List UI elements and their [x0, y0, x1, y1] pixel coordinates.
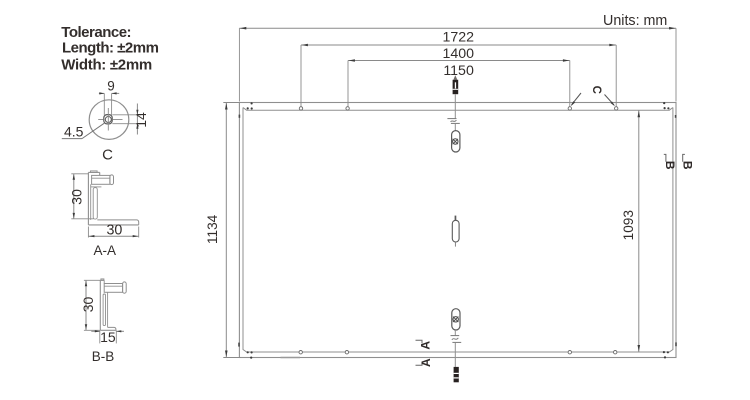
svg-text:B: B [663, 161, 677, 170]
svg-text:A: A [419, 358, 433, 367]
svg-text:1093: 1093 [621, 210, 636, 240]
svg-text:B: B [681, 161, 695, 170]
svg-text:15: 15 [100, 329, 116, 345]
svg-text:30: 30 [69, 189, 85, 205]
svg-text:1722: 1722 [443, 30, 475, 46]
svg-text:4.5: 4.5 [64, 124, 84, 140]
svg-text:30: 30 [80, 297, 96, 313]
svg-text:1134: 1134 [205, 214, 220, 244]
svg-text:Units: mm: Units: mm [603, 13, 667, 29]
svg-text:A-A: A-A [93, 243, 116, 258]
svg-text:14: 14 [133, 112, 149, 128]
svg-text:Width: ±2mm: Width: ±2mm [61, 56, 152, 73]
svg-text:Length: ±2mm: Length: ±2mm [62, 39, 159, 56]
svg-text:B-B: B-B [92, 349, 115, 364]
svg-text:1400: 1400 [443, 46, 475, 62]
svg-text:1150: 1150 [443, 63, 474, 79]
svg-text:30: 30 [106, 222, 122, 238]
svg-text:A: A [419, 341, 433, 350]
svg-text:C: C [102, 147, 113, 164]
svg-text:9: 9 [107, 78, 115, 93]
svg-text:C: C [590, 86, 602, 94]
